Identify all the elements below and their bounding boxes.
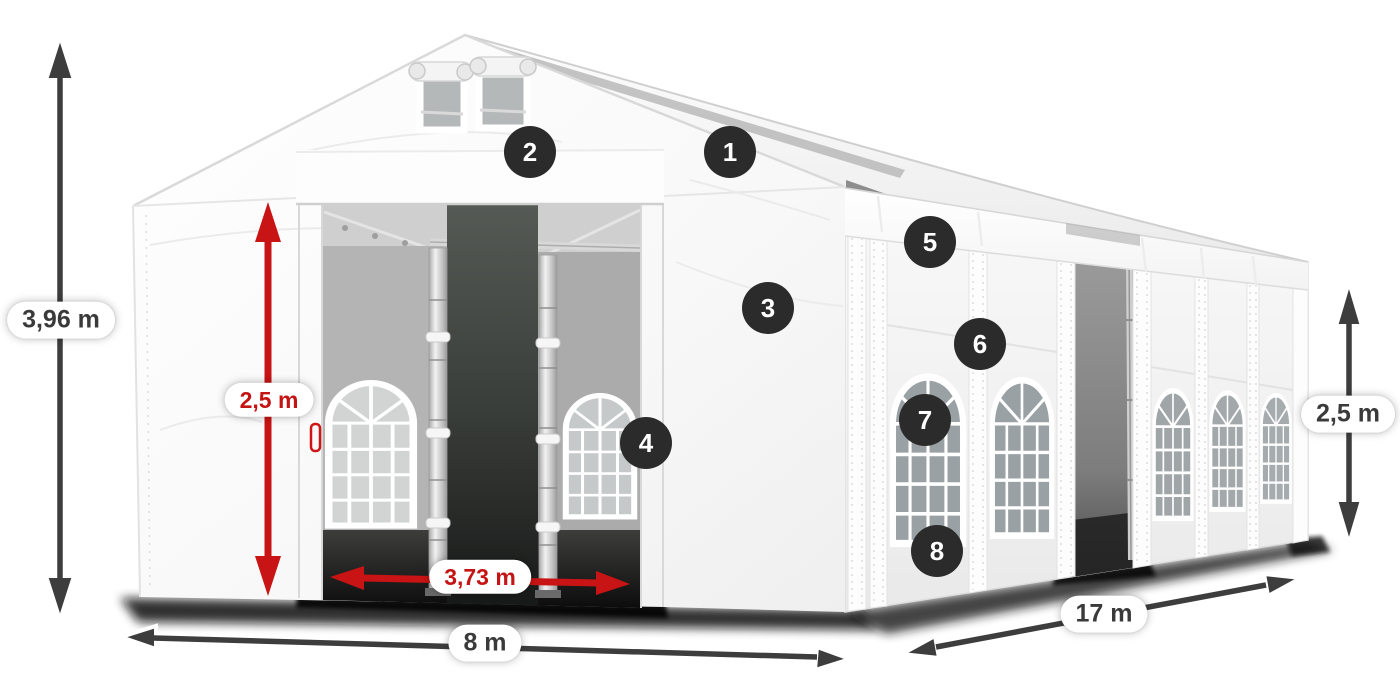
side-length-label: 17 m [1061,596,1148,633]
entrance-interior [322,204,641,610]
total-height-label: 3,96 m [7,302,115,339]
side-door-opening [1072,224,1137,577]
callout-3[interactable]: 3 [742,282,794,334]
entrance-height-label: 2,5 m [225,383,314,417]
callout-5[interactable]: 5 [904,216,956,268]
callout-6[interactable]: 6 [954,318,1006,370]
callout-4[interactable]: 4 [620,417,672,469]
callout-1[interactable]: 1 [704,126,756,178]
tent-dimension-diagram: 3,96 m 2,5 m 3,73 m 8 m 17 m 2,5 m 1 2 3… [0,0,1400,700]
vent-window-left [409,62,473,130]
entrance-lintel [296,150,664,204]
callout-8[interactable]: 8 [911,525,963,577]
tent-illustration [0,0,1400,700]
vent-window-right [470,57,536,128]
side-height-label: 2,5 m [1301,396,1395,433]
entrance-width-label: 3,73 m [429,560,531,594]
callout-7[interactable]: 7 [899,394,951,446]
callout-2[interactable]: 2 [504,126,556,178]
front-width-label: 8 m [448,625,521,662]
